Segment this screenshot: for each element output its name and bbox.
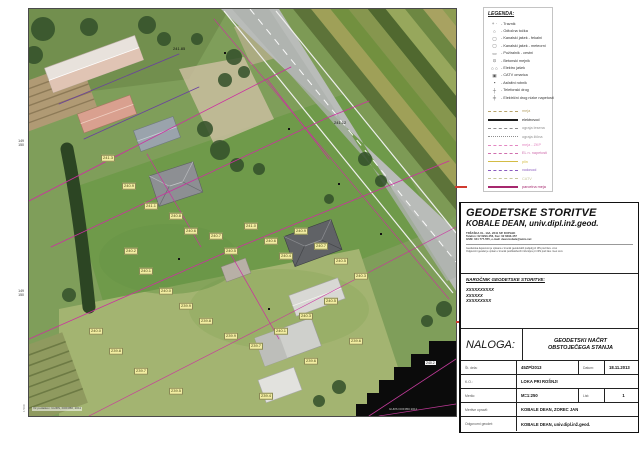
row-job-number: Št. dela: 45ZP/2013 Datum: 18.11.2013 xyxy=(461,361,638,375)
grate-symbol: ▭ xyxy=(488,51,501,56)
map-annotation-layer: 241.3240.9241.1240.8240.6240.7240.5241.0… xyxy=(29,9,456,416)
legend-symbol-label: - Kanalski jašek - meteorni xyxy=(501,44,546,48)
client-line: XXXXXXXXX xyxy=(466,298,633,304)
job-number-label: Št. dela: xyxy=(461,361,517,374)
elevation-spot-label: 239.7 xyxy=(249,343,263,350)
row-measured-by: Meritve opravil: KOBALE DEAN, ZOREC JAN xyxy=(461,403,638,417)
legend-line-label: EL n. napetosti xyxy=(522,151,547,155)
job-number-value: 45ZP/2013 xyxy=(517,361,579,374)
line-sample xyxy=(488,111,518,112)
legend-symbol-label: - Elektro jašek xyxy=(501,66,525,70)
corner-source-note: GURS DOF050 2011 xyxy=(389,408,417,411)
legend-symbol-row: ○ ○- Elektro jašek xyxy=(488,64,552,71)
registration-fine-print: Geodetska dejavnost je vpisana v imenik … xyxy=(466,247,633,253)
legend-symbol-row: + ·- Travnik xyxy=(488,20,552,27)
marker-symbol: ⊙ xyxy=(488,58,501,63)
legend-line-sample xyxy=(488,136,518,137)
legend-line-label: CATV xyxy=(522,177,532,181)
row-responsible-surveyor: Odgovorni geodet: KOBALE DEAN, univ.dipl… xyxy=(461,417,638,431)
legend-symbol-label: - Travnik xyxy=(501,22,516,26)
title-block: GEODETSKE STORITVE KOBALE DEAN, univ.dip… xyxy=(459,202,639,433)
legend-line-label: meja - ZKP xyxy=(522,143,541,147)
legend-symbol-label: - Odtočna točka xyxy=(501,29,528,33)
scale-value: M=1:250 xyxy=(517,389,579,402)
legend-symbol-row: ┼- Telefonski drog xyxy=(488,87,552,94)
legend-symbol-row: ▭- Požiralnik - cestni xyxy=(488,50,552,57)
elevation-spot-label: 239.8 xyxy=(109,348,123,355)
line-sample xyxy=(488,136,518,137)
elevation-spot-label: 240.3 xyxy=(354,273,368,280)
elevation-spot-label: 240.8 xyxy=(169,213,183,220)
legend-title: LEGENDA: xyxy=(488,11,552,17)
plus-dot-symbol: + · xyxy=(488,21,501,26)
elevation-spot-label: 240.2 xyxy=(124,248,138,255)
map-source-note: Vir podatkov: GURS, DOF050, 2011 xyxy=(32,407,82,411)
elevation-spot-label: 240.6 xyxy=(184,228,198,235)
legend-line-sample xyxy=(488,161,518,162)
elevation-spot-label: 240.5 xyxy=(334,258,348,265)
elevation-spot-label: 240.1 xyxy=(139,268,153,275)
elevation-spot-label: 240.9 xyxy=(122,183,136,190)
legend-symbol-row: ⊙- Betonski mejnik xyxy=(488,57,552,64)
elevation-spot-label: 239.5 xyxy=(169,388,183,395)
filled-square-symbol: ▪ xyxy=(488,80,501,85)
legend-line-sample xyxy=(488,128,518,129)
grid-coordinate-line: 150 xyxy=(8,294,24,298)
point-label: 240.2 xyxy=(425,361,436,365)
elevation-spot-label: 239.6 xyxy=(349,338,363,345)
legend-symbol-label: - Električni drog nizke napetosti xyxy=(501,96,554,100)
grid-coordinate-line: 150 xyxy=(8,144,24,148)
elevation-spot-label: 240.7 xyxy=(209,233,223,240)
legend-symbol-label: - Kanalski jašek - fekalni xyxy=(501,36,542,40)
elevation-spot-label: 239.8 xyxy=(199,318,213,325)
client-section: NAROČNIK GEODETSKE STORITVE: XXXXXXXXXXX… xyxy=(461,274,638,329)
date-value: 18.11.2013 xyxy=(605,361,638,374)
grid-coordinate-label: 149150 xyxy=(8,290,24,297)
legend-line-sample xyxy=(488,119,518,121)
legend-symbol-label: - Betonski mejnik xyxy=(501,59,530,63)
orthophoto-map-panel: 241.3240.9241.1240.8240.6240.7240.5241.0… xyxy=(28,8,457,417)
measured-by-label: Meritve opravil: xyxy=(461,403,517,416)
company-address: TRŽAŠKA UL. 14A, 2241 SP. DUPLEKTelefon:… xyxy=(466,232,633,242)
date-label: Datum: xyxy=(579,361,605,374)
elevation-spot-label: 240.0 xyxy=(89,328,103,335)
line-sample xyxy=(488,178,518,179)
legend-symbol-row: ▢- Kanalski jašek - fekalni xyxy=(488,35,552,42)
legend-line-row: ograja lesena xyxy=(488,124,552,132)
task-header-row: NALOGA: GEODETSKI NAČRT OBSTOJEČEGA STAN… xyxy=(461,329,638,361)
legend-line-label: plin xyxy=(522,160,528,164)
pole-symbol: ╪ xyxy=(488,95,501,100)
row-scale: Merilo: M=1:250 List: 1 xyxy=(461,389,638,403)
surveyor-label: Odgovorni geodet: xyxy=(461,417,517,431)
line-sample xyxy=(488,153,518,154)
legend-line-label: elektrovod xyxy=(522,118,540,122)
task-title-line2: OBSTOJEČEGA STANJA xyxy=(548,345,613,352)
elevation-spot-label: 240.7 xyxy=(314,243,328,250)
elevation-spot-label: 240.0 xyxy=(159,288,173,295)
legend-line-sample xyxy=(488,170,518,171)
task-label: NALOGA: xyxy=(461,329,523,360)
elevation-spot-label: 239.4 xyxy=(259,393,273,400)
legend-line-sample xyxy=(488,178,518,179)
legend-line-label: vodovod xyxy=(522,168,536,172)
divider xyxy=(466,244,633,245)
double-circle-symbol: ○ ○ xyxy=(488,66,501,71)
client-lines: XXXXXXXXXXXXXXXXXXXXXXXXX xyxy=(466,287,633,304)
company-name: GEODETSKE STORITVE xyxy=(466,207,633,219)
legend-line-sample xyxy=(488,111,518,112)
legend-line-sample xyxy=(488,153,518,154)
line-sample xyxy=(488,145,518,146)
legend-line-list: mejaelektrovodograja lesenaograja žičnam… xyxy=(488,107,552,191)
legend-panel: LEGENDA: + ·- Travnik○- Odtočna točka▢- … xyxy=(483,7,553,192)
elevation-spot-label: 240.1 xyxy=(274,328,288,335)
line-sample xyxy=(488,186,518,188)
elevation-spot-label: 239.9 xyxy=(179,303,193,310)
legend-symbol-row: ▣- CATV omarica xyxy=(488,72,552,79)
legend-line-label: ograja žična xyxy=(522,135,542,139)
legend-symbol-label: - Požiralnik - cestni xyxy=(501,51,533,55)
legend-line-sample xyxy=(488,145,518,146)
legend-line-label: ograja lesena xyxy=(522,126,545,130)
elevation-spot-label: 240.3 xyxy=(299,313,313,320)
task-title: GEODETSKI NAČRT OBSTOJEČEGA STANJA xyxy=(523,329,638,360)
fine-print-line: Odgovorni geodet je vpisan v imenik poob… xyxy=(466,250,633,253)
elevation-spot-label: 240.4 xyxy=(279,253,293,260)
road-elevation-label: 241.85 xyxy=(173,47,185,51)
legend-symbol-label: - Asfaltni robnik xyxy=(501,81,527,85)
client-heading: NAROČNIK GEODETSKE STORITVE: xyxy=(466,277,633,283)
elevation-spot-label: 240.5 xyxy=(224,248,238,255)
legend-symbol-list: + ·- Travnik○- Odtočna točka▢- Kanalski … xyxy=(488,20,552,101)
sheet-label: List: xyxy=(579,389,605,402)
elevation-spot-label: 241.1 xyxy=(144,203,158,210)
geodetic-plan-sheet: 241.3240.9241.1240.8240.6240.7240.5241.0… xyxy=(0,0,640,452)
elevation-spot-label: 240.9 xyxy=(294,228,308,235)
legend-symbol-row: ○- Odtočna točka xyxy=(488,27,552,34)
legend-line-sample xyxy=(488,186,518,188)
measured-by-value: KOBALE DEAN, ZOREC JAN xyxy=(517,403,638,416)
grid-coordinate-label: 149150 xyxy=(8,140,24,147)
legend-line-row: elektrovod xyxy=(488,116,552,124)
company-section: GEODETSKE STORITVE KOBALE DEAN, univ.dip… xyxy=(461,203,638,274)
row-cadastral-municipality: K.O.: LOKA PRI ROŠNJI xyxy=(461,375,638,389)
ko-label: K.O.: xyxy=(461,375,517,388)
task-title-line1: GEODETSKI NAČRT xyxy=(554,338,607,345)
road-elevation-label: 241.12 xyxy=(334,121,346,125)
elevation-spot-label: 240.6 xyxy=(264,238,278,245)
legend-line-row: CATV xyxy=(488,174,552,182)
legend-line-row: vodovod xyxy=(488,166,552,174)
square-symbol: ▢ xyxy=(488,43,501,48)
circle-symbol: ○ xyxy=(488,29,501,34)
line-sample xyxy=(488,161,518,162)
legend-line-row: ograja žična xyxy=(488,132,552,140)
elevation-spot-label: 239.7 xyxy=(134,368,148,375)
fold-mark xyxy=(455,186,467,188)
surveyor-name: KOBALE DEAN, univ.dipl.inž.geod. xyxy=(466,219,633,229)
legend-symbol-row: ╪- Električni drog nizke napetosti xyxy=(488,94,552,101)
elevation-spot-label: 240.5 xyxy=(324,298,338,305)
legend-line-row: EL n. napetosti xyxy=(488,149,552,157)
line-sample xyxy=(488,128,518,129)
elevation-spot-label: 239.9 xyxy=(224,333,238,340)
legend-line-row: plin xyxy=(488,158,552,166)
line-sample xyxy=(488,170,518,171)
ko-value: LOKA PRI ROŠNJI xyxy=(517,375,638,388)
legend-symbol-row: ▢- Kanalski jašek - meteorni xyxy=(488,42,552,49)
legend-symbol-row: ▪- Asfaltni robnik xyxy=(488,79,552,86)
elevation-spot-label: 239.6 xyxy=(304,358,318,365)
scale-label: Merilo: xyxy=(461,389,517,402)
elevation-spot-label: 241.3 xyxy=(101,155,115,162)
line-sample xyxy=(488,119,518,121)
sheet-value: 1 xyxy=(605,389,638,402)
square-symbol: ▢ xyxy=(488,36,501,41)
legend-line-row: meja - ZKP xyxy=(488,141,552,149)
pole-symbol: ┼ xyxy=(488,88,501,93)
surveyor-value: KOBALE DEAN, univ.dipl.inž.geod. xyxy=(517,417,638,431)
map-scale-note: 1:500 xyxy=(22,404,26,412)
legend-symbol-label: - Telefonski drog xyxy=(501,88,529,92)
legend-line-label: meja xyxy=(522,109,530,113)
elevation-spot-label: 241.0 xyxy=(244,223,258,230)
legend-line-row: parcelna meja xyxy=(488,183,552,191)
legend-line-label: parcelna meja xyxy=(522,185,546,189)
legend-symbol-label: - CATV omarica xyxy=(501,73,528,77)
cabinet-symbol: ▣ xyxy=(488,73,501,78)
address-line: GSM: 041 777-555, e-mail: dean.kobale@am… xyxy=(466,238,633,241)
legend-line-row: meja xyxy=(488,107,552,115)
